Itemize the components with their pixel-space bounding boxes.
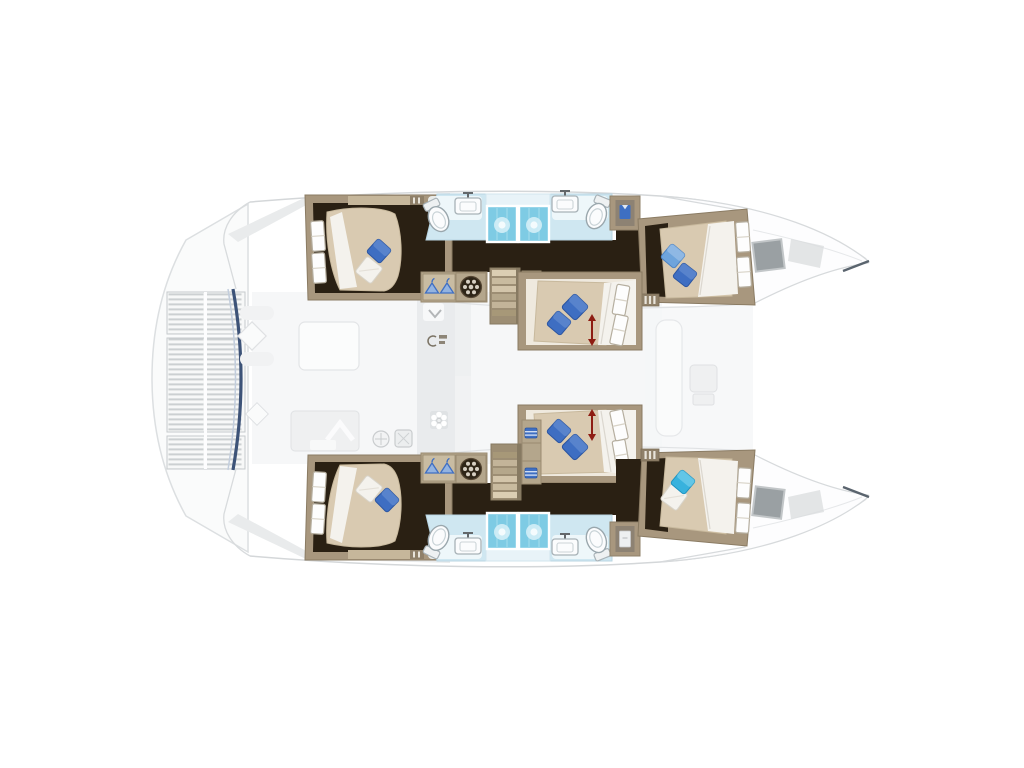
- shower-shelf: [486, 194, 550, 206]
- hull-window: [311, 472, 326, 503]
- companionway-stairs: [490, 268, 520, 324]
- washing-machine: [456, 273, 486, 301]
- catamaran-floor-plan: Overhead floor plan of a six-cabin saili…: [0, 0, 1024, 768]
- vent-chevron-icon: [423, 303, 444, 321]
- bathroom-bottom: Bottom hull bathroom: [421, 513, 640, 562]
- locker-door: [610, 522, 640, 556]
- hull-window: [735, 503, 750, 534]
- cockpit-seat-ghost: [240, 352, 274, 366]
- cockpit-table-ghost: [693, 394, 714, 405]
- hull-window: [311, 253, 326, 284]
- washing-machine: [456, 455, 486, 483]
- hob-icon: [395, 430, 412, 447]
- towel-shelf-column: [522, 420, 541, 484]
- shower-shelf: [486, 549, 550, 561]
- galley-counter: [455, 294, 471, 378]
- hull-window: [735, 222, 750, 253]
- shower-stall: [519, 206, 549, 242]
- bathroom-top: Top hull bathroom: [421, 191, 640, 242]
- cabin-center-top: Center cabin - upper nacelle: [518, 272, 642, 350]
- sink-icon: [373, 431, 389, 447]
- cockpit-seat-ghost: [240, 306, 274, 320]
- hull-window: [736, 257, 751, 288]
- towel-stack: [525, 428, 537, 438]
- towel-stack: [525, 468, 537, 478]
- cabinet-small: [410, 550, 424, 559]
- striped-cabinet: [641, 449, 659, 461]
- saloon-table-ghost: [299, 322, 359, 370]
- hull-window: [736, 468, 751, 499]
- fan-flower-icon: [430, 411, 448, 429]
- wardrobe-shirt: [610, 196, 640, 230]
- shower-stall: [519, 513, 549, 549]
- aft-platform-slats: aft platform with slatted floor: [167, 292, 245, 469]
- hull-window: [310, 504, 325, 535]
- bow-hatch-bottom: [752, 486, 784, 518]
- headboard-shelf: [348, 550, 412, 559]
- companionway-stairs: [491, 444, 521, 500]
- cabin-forward-top: Forward cabin - top hull: [638, 209, 755, 306]
- shower-stall: [487, 513, 517, 549]
- cabin-forward-bottom: Forward cabin - bottom hull: [638, 449, 755, 546]
- striped-cabinet: [641, 294, 659, 306]
- hull-window: [310, 221, 325, 252]
- shower-stall: [487, 206, 517, 242]
- cockpit-bench-ghost: [656, 320, 682, 436]
- bow-hatch-top: [752, 239, 784, 271]
- headboard-shelf: [348, 196, 412, 205]
- cabinet-small: [410, 196, 424, 205]
- floor-plan-canvas: Overhead floor plan of a six-cabin saili…: [0, 0, 1024, 768]
- cockpit-table-ghost: [690, 365, 717, 392]
- companionway-chevron-mat: [291, 411, 359, 451]
